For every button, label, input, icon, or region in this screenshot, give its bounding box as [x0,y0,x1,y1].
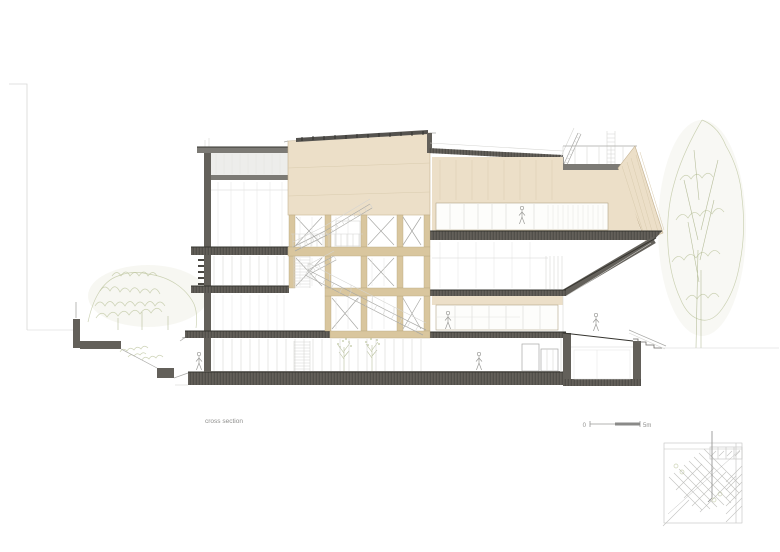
lower-window-band [436,305,558,330]
scale-end-label: 5m [643,423,651,429]
slope-shrubs [120,346,163,360]
left-landscape [73,265,208,378]
drawing-caption: cross section [205,418,243,425]
right-middle-storey [430,242,566,296]
section-drawing: 0 5m cross section [0,0,780,552]
building-section [175,128,666,386]
top-hall-volume [284,130,436,215]
sunken-court [563,313,666,386]
stair-ground [294,341,310,371]
left-roof [197,147,292,246]
ground-window [541,349,558,371]
key-plan-hatch [669,449,742,522]
site-boundary-line [9,84,73,330]
key-plan [663,431,742,526]
door [522,344,539,371]
foundation-slab [175,372,565,385]
indoor-plant [337,338,352,371]
upper-window-band [436,203,608,230]
ground-floor [196,338,561,372]
stair-straight-run [294,256,310,288]
atrium [288,199,430,371]
scale-bar: 0 5m [583,421,652,429]
indoor-plant [365,338,380,371]
drawing-sheet: 0 5m cross section [0,0,780,552]
right-lower-storey [420,296,566,338]
human-figure [476,352,482,370]
human-figure [196,352,202,370]
scale-zero-label: 0 [583,423,587,429]
tree-sketch [658,120,779,348]
human-figure [593,313,599,331]
